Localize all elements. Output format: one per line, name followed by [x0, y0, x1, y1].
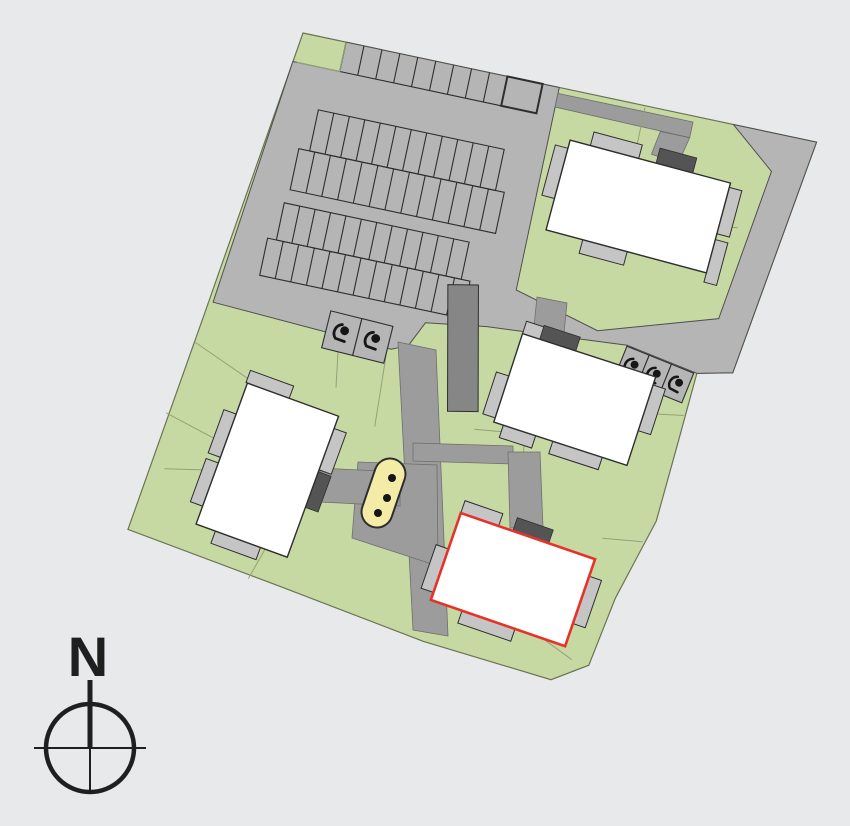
play-area-dot — [388, 474, 396, 482]
parking-stall-wide — [501, 76, 542, 113]
path-building-4-horizontal — [413, 443, 513, 464]
play-area — [374, 474, 396, 517]
play-area-dot — [383, 494, 391, 502]
play-area-dot — [374, 509, 382, 517]
site-plan-canvas: N — [0, 0, 850, 826]
compass-north-label: N — [68, 625, 108, 688]
path-building-4-vertical — [508, 452, 543, 528]
site-plan-page: N — [0, 0, 850, 826]
